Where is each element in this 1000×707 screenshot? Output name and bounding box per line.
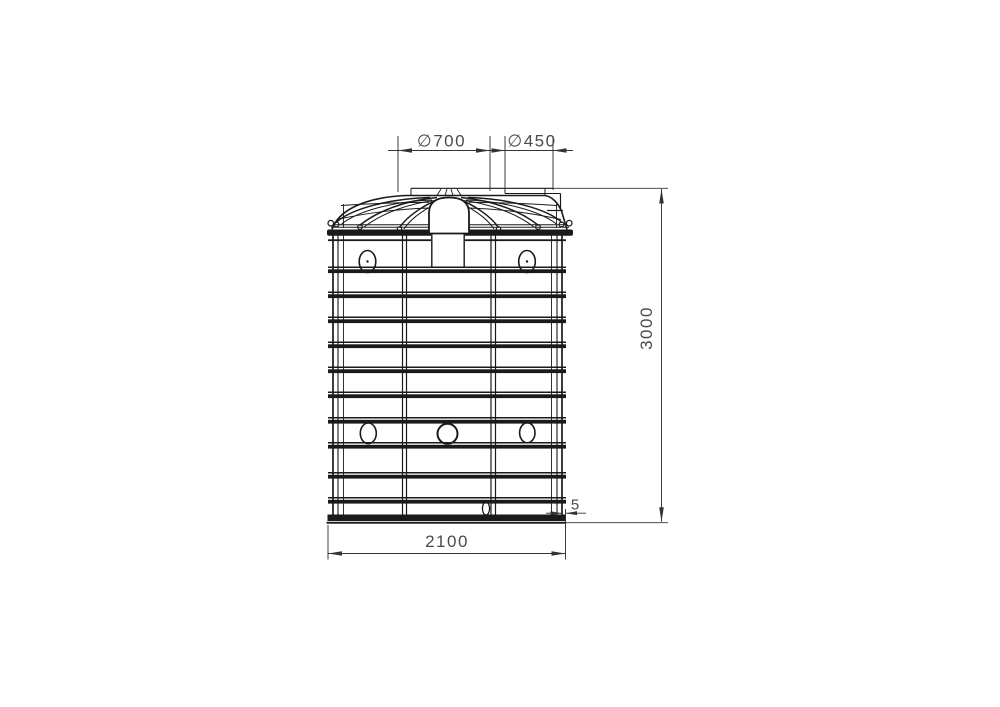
- upper-port-right-center: [526, 260, 528, 262]
- arrow: [476, 148, 490, 153]
- arrow: [328, 551, 342, 556]
- arrow: [492, 148, 506, 153]
- dimension-top: ∅700 ∅450: [388, 132, 573, 193]
- arrow: [552, 551, 566, 556]
- bottom-rim: [328, 515, 567, 522]
- rib-band: [328, 472, 566, 479]
- rib-band: [328, 342, 566, 349]
- rib-band: [328, 497, 566, 504]
- rib-band: [328, 317, 566, 324]
- manhole-arch: [429, 198, 469, 234]
- dimension-height: 3000: [554, 188, 668, 522]
- tank-technical-drawing: ∅700 ∅450 3000 2100 5: [0, 0, 1000, 707]
- mid-port-center: [438, 424, 458, 444]
- body-rib-bands: [328, 267, 566, 504]
- rib-band: [328, 292, 566, 299]
- mid-port-right: [520, 423, 535, 443]
- dimension-base-lip: 5: [546, 497, 586, 516]
- rib-band: [328, 417, 566, 424]
- rib-band: [328, 392, 566, 399]
- dim-label-manhole-diameter: ∅700: [417, 132, 466, 151]
- dim-label-overall-width: 2100: [425, 532, 469, 551]
- drain-slot: [482, 502, 489, 515]
- upper-port-left-center: [366, 260, 368, 262]
- drawing-canvas: ∅700 ∅450 3000 2100 5: [0, 0, 1000, 707]
- arrow: [659, 189, 664, 204]
- dim-label-inlet-diameter: ∅450: [507, 132, 556, 151]
- tank-base: [327, 515, 567, 524]
- manhole-neck: [431, 233, 465, 267]
- base-plate: [327, 522, 567, 524]
- mid-port-left: [360, 423, 376, 444]
- arrow: [398, 148, 412, 153]
- rib-band: [328, 367, 566, 374]
- arrow: [659, 507, 664, 522]
- dim-label-base-lip: 5: [571, 497, 579, 514]
- dim-label-overall-height: 3000: [637, 306, 656, 350]
